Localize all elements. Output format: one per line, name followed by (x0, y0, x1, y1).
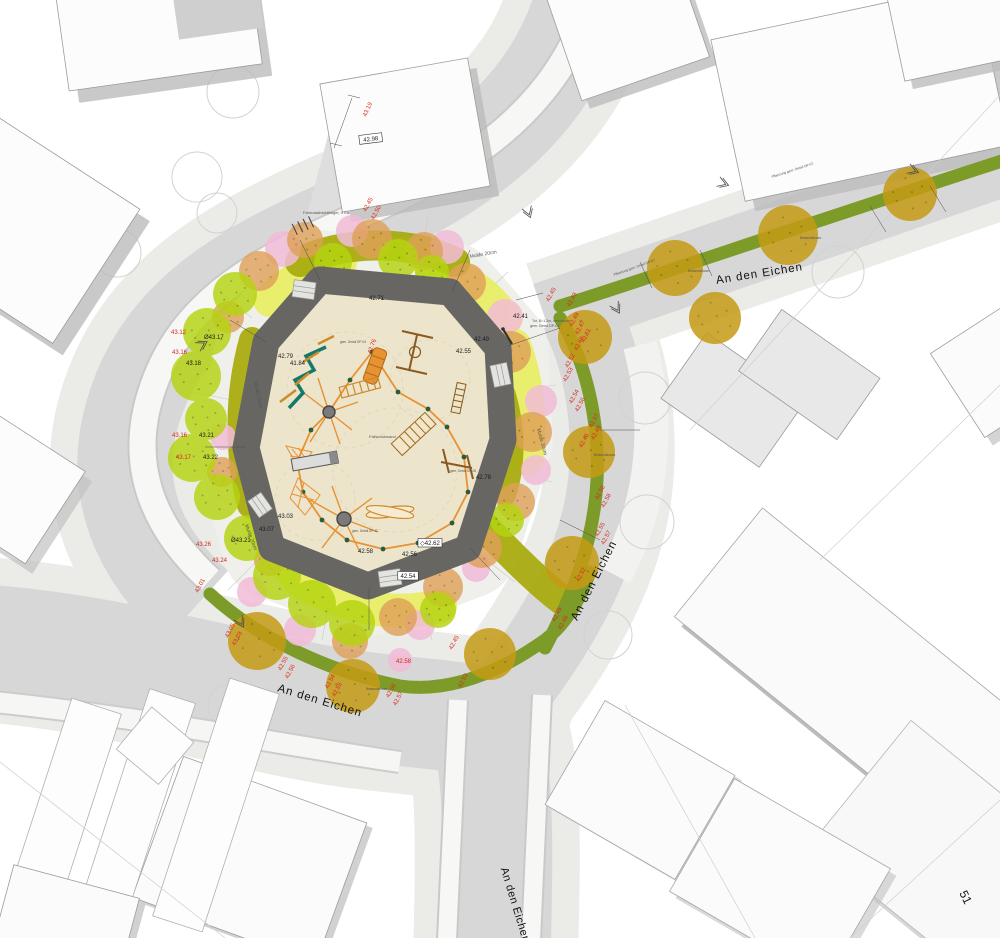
elevation-label: Ø43.17 (204, 335, 224, 341)
elevation-label: 42.78 (476, 475, 492, 481)
elevation-label: 42.79 (278, 354, 294, 360)
elevation-label: 43.16 (172, 350, 188, 356)
elevation-label: 43.07 (259, 527, 275, 533)
elevation-label: 42.58 (396, 659, 412, 665)
elevation-label: 42.55 (456, 349, 472, 355)
annotation-label: Bestandsbaum (800, 236, 822, 240)
elevation-label: 43.22 (203, 455, 219, 461)
elevation-label: 43.17 (176, 455, 192, 461)
playground-ring-path (246, 280, 503, 586)
annotation-label: Fallschutzsand (369, 434, 396, 439)
annotation-label: Bestandsbaum (688, 269, 710, 273)
elevation-label: ◇42.62 (420, 541, 440, 547)
elevation-label: 43.16 (172, 433, 188, 439)
elevation-label: 42.54 (400, 574, 416, 580)
elevation-label: 42.58 (358, 549, 374, 555)
building-right-edge (930, 302, 1000, 446)
elevation-label: 42.56 (402, 552, 418, 558)
elevation-label: 43.03 (278, 514, 294, 520)
elevation-label: 42.49 (474, 337, 490, 343)
elevation-label: 43.12 (171, 330, 187, 336)
annotation-label: gem. Detail DP-08 (450, 469, 476, 473)
annotation-label: Bestandsbaum (366, 687, 388, 691)
elevation-label: 42.71 (369, 296, 385, 302)
annotation-label: Bestandsbaum (594, 453, 616, 457)
annotation-label: gem. Detail DP-11 (352, 529, 378, 533)
building-topcenter (320, 58, 499, 222)
elevation-label: 41.84 (290, 361, 306, 367)
annotation-label: gem. Detail DP-01 (530, 324, 559, 328)
elevation-label: 43.24 (212, 558, 228, 564)
annotation-label: gem. Detail DP-04 (340, 340, 366, 344)
elevation-label: 43.21 (199, 433, 215, 439)
elevation-label: 43.18 (186, 361, 202, 367)
annotation-label: Tor, B=1,2m, verzinkbar (532, 319, 571, 323)
site-plan-canvas: An den EichenAn den EichenAn den EichenA… (0, 0, 1000, 938)
annotation-label: Fahrradabstellbügel, 4 Stk (303, 210, 350, 215)
site-plan-drawing: An den EichenAn den EichenAn den EichenA… (0, 0, 1000, 938)
elevation-label: 43.26 (196, 542, 212, 548)
elevation-label: 42.41 (513, 314, 529, 320)
